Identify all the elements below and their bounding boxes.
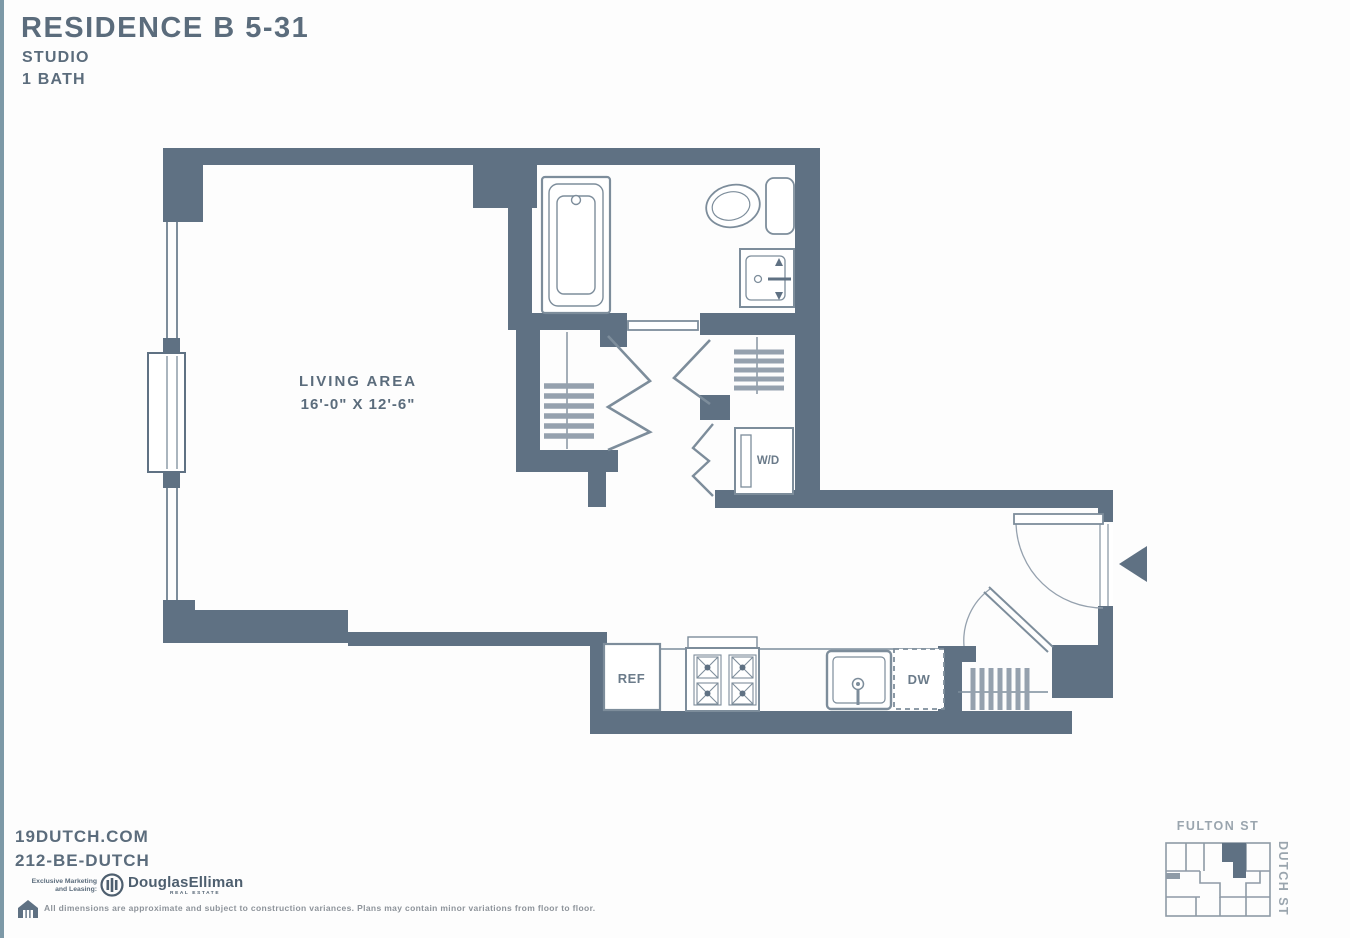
floor-plan-drawing	[0, 0, 1350, 938]
wd-bifold-door	[693, 424, 713, 496]
refrigerator-label: REF	[603, 671, 660, 686]
unit-type: STUDIO	[22, 49, 90, 67]
closet-1	[544, 332, 650, 450]
closet-1-bifold-door	[608, 336, 650, 450]
key-plan	[1166, 843, 1270, 916]
broker-tagline: REAL ESTATE	[170, 891, 220, 896]
kitchen-sink	[827, 651, 891, 709]
bathtub	[542, 177, 610, 313]
street-label-fulton: FULTON ST	[1166, 819, 1270, 833]
broker-name: DouglasElliman	[128, 874, 243, 891]
key-plan-highlighted-unit	[1222, 843, 1246, 878]
living-area-label: LIVING AREA	[268, 373, 448, 390]
bath-count: 1 BATH	[22, 71, 86, 89]
website-url: 19DUTCH.COM	[15, 827, 149, 847]
marketing-caption: Exclusive Marketing and Leasing:	[13, 878, 97, 894]
washer-dryer-label: W/D	[737, 455, 799, 467]
house-icon	[17, 899, 39, 919]
bath-sink	[740, 249, 794, 307]
dishwasher-label: DW	[894, 672, 944, 687]
broker-logo-icon	[100, 873, 124, 897]
closet-2-bifold-door	[674, 340, 710, 404]
disclaimer-text: All dimensions are approximate and subje…	[44, 903, 596, 913]
stove	[686, 637, 759, 711]
toilet	[702, 178, 794, 234]
entry-arrow-icon	[1119, 546, 1147, 582]
bathroom-door	[628, 321, 698, 330]
floor-plan-page: RESIDENCE B 5-31 STUDIO 1 BATH LIVING AR…	[0, 0, 1350, 938]
marketing-caption-line2: and Leasing:	[13, 886, 97, 894]
phone-number: 212-BE-DUTCH	[15, 851, 150, 871]
marketing-caption-line1: Exclusive Marketing	[13, 878, 97, 886]
page-title: RESIDENCE B 5-31	[21, 12, 309, 45]
closet-2	[674, 337, 784, 404]
living-area-dimensions: 16'-0" X 12'-6"	[268, 396, 448, 413]
entry-door	[1014, 514, 1113, 608]
street-label-dutch: DUTCH ST	[1276, 841, 1290, 925]
